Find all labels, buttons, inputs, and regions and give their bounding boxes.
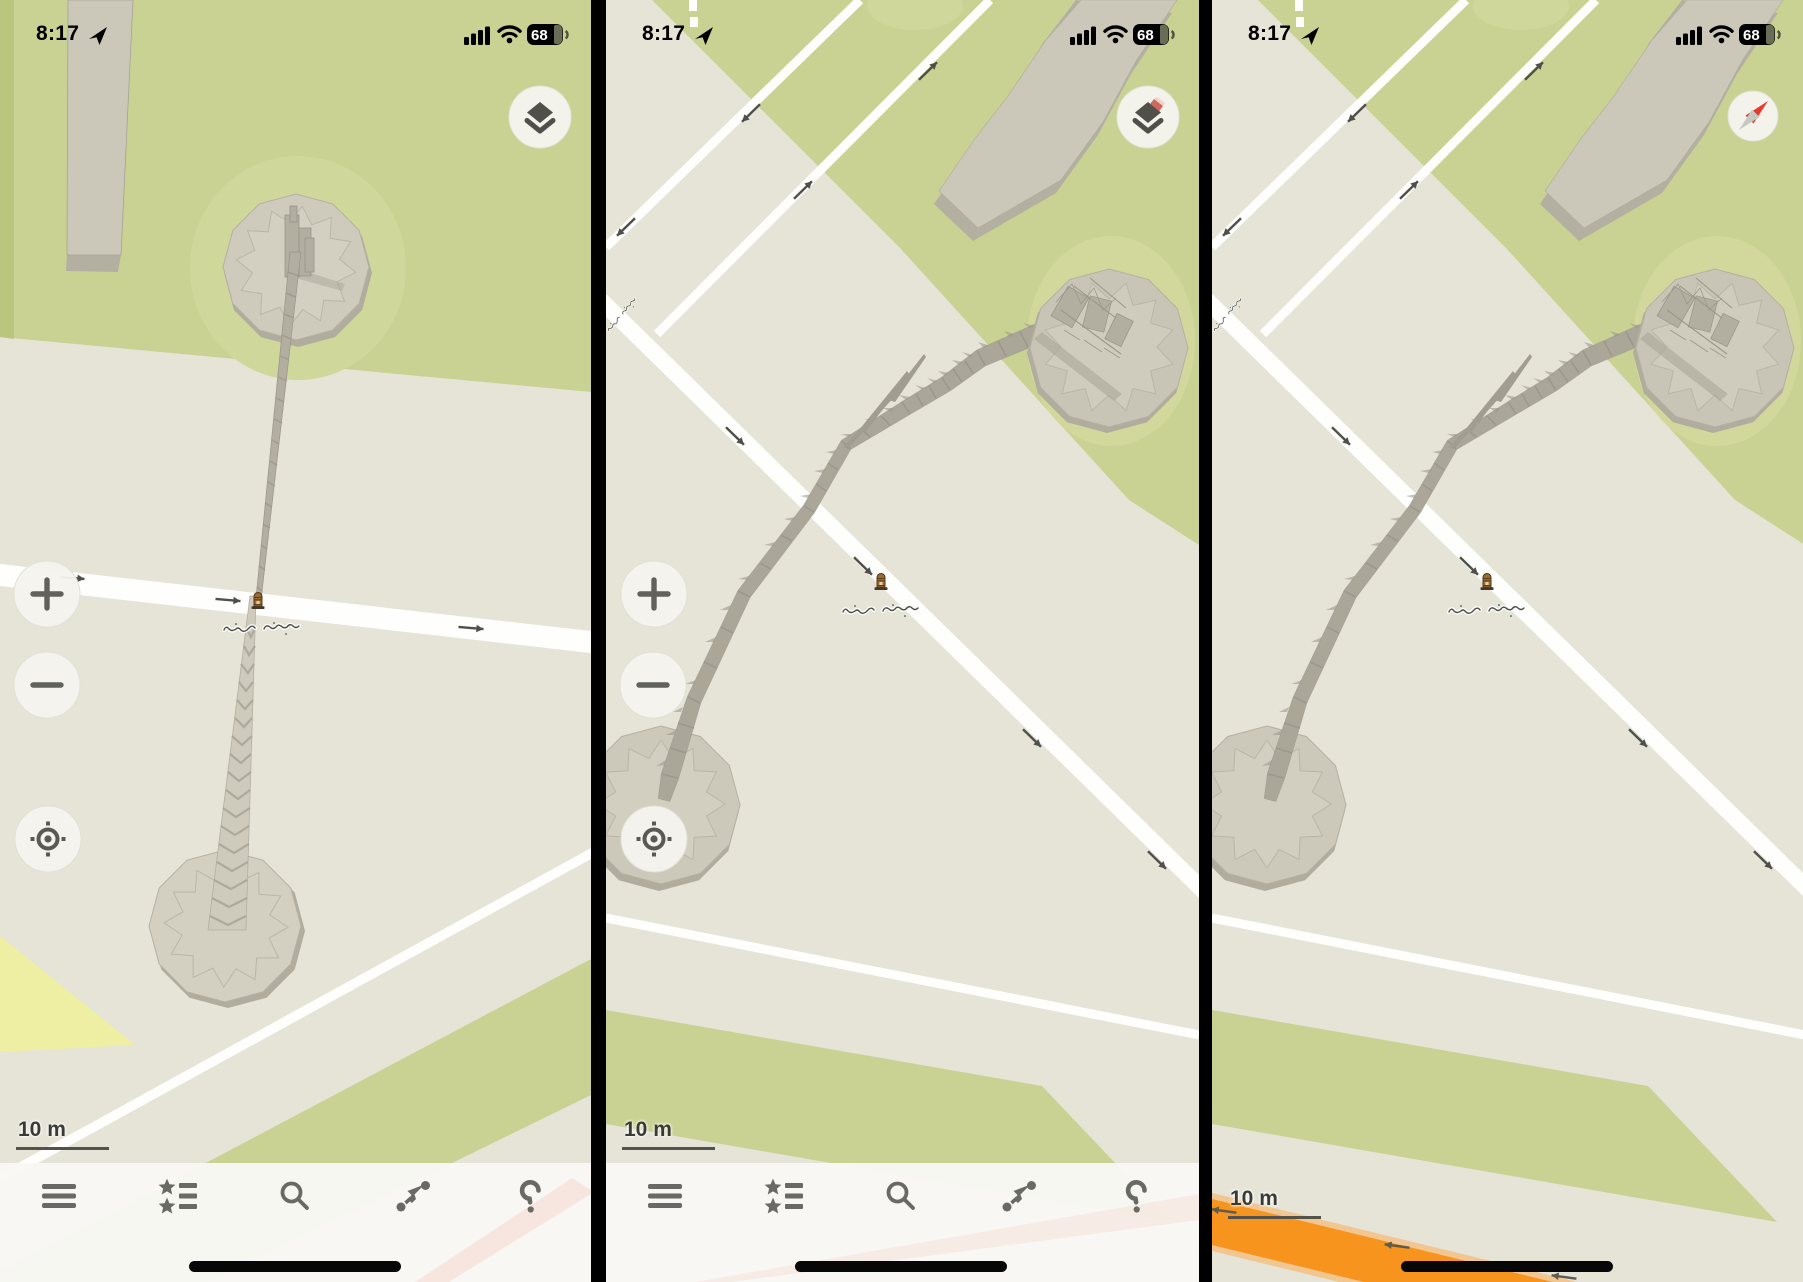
svg-text:68: 68 [531, 27, 548, 44]
svg-text:68: 68 [1743, 27, 1760, 44]
svg-text:68: 68 [1137, 27, 1154, 44]
